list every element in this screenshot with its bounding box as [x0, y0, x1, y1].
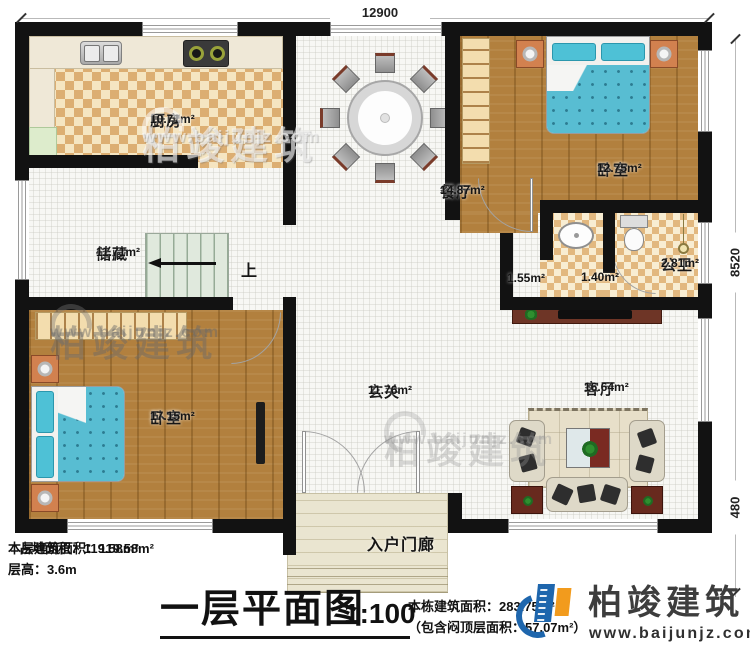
toilet: [620, 215, 648, 228]
window: [508, 519, 658, 533]
nightstand: [31, 484, 59, 512]
dimension-right-main: 8520: [728, 233, 743, 293]
basin-drain: [574, 233, 579, 238]
pillow: [601, 43, 645, 61]
wall: [540, 213, 553, 260]
stove-burner: [210, 46, 225, 61]
plan-scale: 1:100: [344, 600, 416, 628]
sofa-cushion: [637, 428, 658, 449]
window: [698, 318, 712, 422]
wall: [15, 297, 233, 310]
stairs-arrow-head: [148, 258, 161, 268]
stove-burner: [189, 46, 204, 61]
wash-basin: [558, 222, 594, 249]
sofa-main: [546, 477, 628, 512]
kitchen-counter-top: [29, 36, 283, 69]
bedroom-top-door-leaf: [530, 178, 533, 232]
sheet-fold: [547, 65, 649, 91]
wall: [283, 297, 296, 555]
wall: [540, 200, 712, 213]
plant: [524, 309, 538, 320]
coffee-table: [566, 428, 610, 468]
window: [15, 180, 29, 280]
sofa-cushion: [577, 484, 597, 504]
window: [698, 50, 712, 132]
wall: [283, 22, 296, 225]
wardrobe: [462, 38, 490, 164]
wall: [603, 213, 615, 273]
dining-chair: [375, 163, 395, 183]
watermark-url: www.baijunjz.com: [142, 128, 321, 146]
sofa-cushion: [551, 483, 574, 506]
dining-table-center: [380, 113, 390, 123]
plant: [523, 496, 533, 506]
kitchen-counter-left: [29, 68, 55, 128]
sofa-right: [629, 420, 665, 482]
tv: [558, 310, 632, 319]
dimension-top: 12900: [330, 5, 430, 20]
window: [330, 22, 442, 36]
brand-name: 柏竣建筑: [588, 586, 744, 620]
brand-url: www.baijunjz.com: [589, 626, 750, 642]
title-underline: [160, 636, 410, 639]
nightstand: [650, 40, 678, 68]
logo-building-orange-icon: [555, 588, 572, 616]
sofa-cushion: [600, 484, 621, 505]
lamp: [38, 491, 53, 506]
dining-table: [347, 80, 423, 156]
sink-basin: [84, 45, 100, 62]
pillow: [36, 436, 54, 478]
bed: [546, 36, 650, 134]
dimension-right-porch: 480: [728, 481, 743, 535]
side-table: [511, 486, 543, 514]
stat-ground-area: 占地面积：119.58m²: [19, 538, 139, 557]
dining-chair: [375, 53, 395, 73]
lamp: [523, 47, 538, 62]
bed: [31, 386, 125, 482]
sheet-fold: [58, 387, 86, 481]
floor-plan-page: 厨房10.71m² 餐厅14.87m² 卧室12.75m² 储藏11.71m² …: [0, 0, 750, 651]
pillow: [552, 43, 596, 61]
window: [67, 519, 213, 533]
wall: [448, 493, 462, 533]
window: [142, 22, 238, 36]
pillow: [36, 391, 54, 433]
side-table: [631, 486, 663, 514]
watermark-url: www.baijunjz.com: [50, 325, 220, 342]
shower-head: [678, 243, 689, 254]
plant: [643, 496, 653, 506]
watermark-url: www.baijunjz.com: [384, 432, 554, 449]
sink-basin: [103, 45, 119, 62]
stat-floor-height: 层高：3.6m: [8, 559, 77, 578]
plan-title: 一层平面图: [160, 590, 365, 629]
tv-panel: [256, 402, 265, 464]
kitchen-sink: [80, 41, 122, 65]
dining-chair: [320, 108, 340, 128]
kitchen-appliance: [29, 127, 57, 156]
window: [698, 222, 712, 284]
brand-logo: [514, 580, 580, 644]
stat-floor-area: 本层建筑面积：119.58m² 占地面积：119.58m²: [8, 538, 19, 553]
nightstand: [516, 40, 544, 68]
stairs-arrow-line: [160, 262, 216, 265]
entry-door-leaf: [302, 431, 306, 493]
kitchen-stove: [183, 40, 229, 67]
sofa-cushion: [635, 454, 655, 474]
shower-cord: [683, 214, 684, 244]
lamp: [657, 47, 672, 62]
plant: [582, 441, 598, 457]
wall: [500, 297, 712, 310]
